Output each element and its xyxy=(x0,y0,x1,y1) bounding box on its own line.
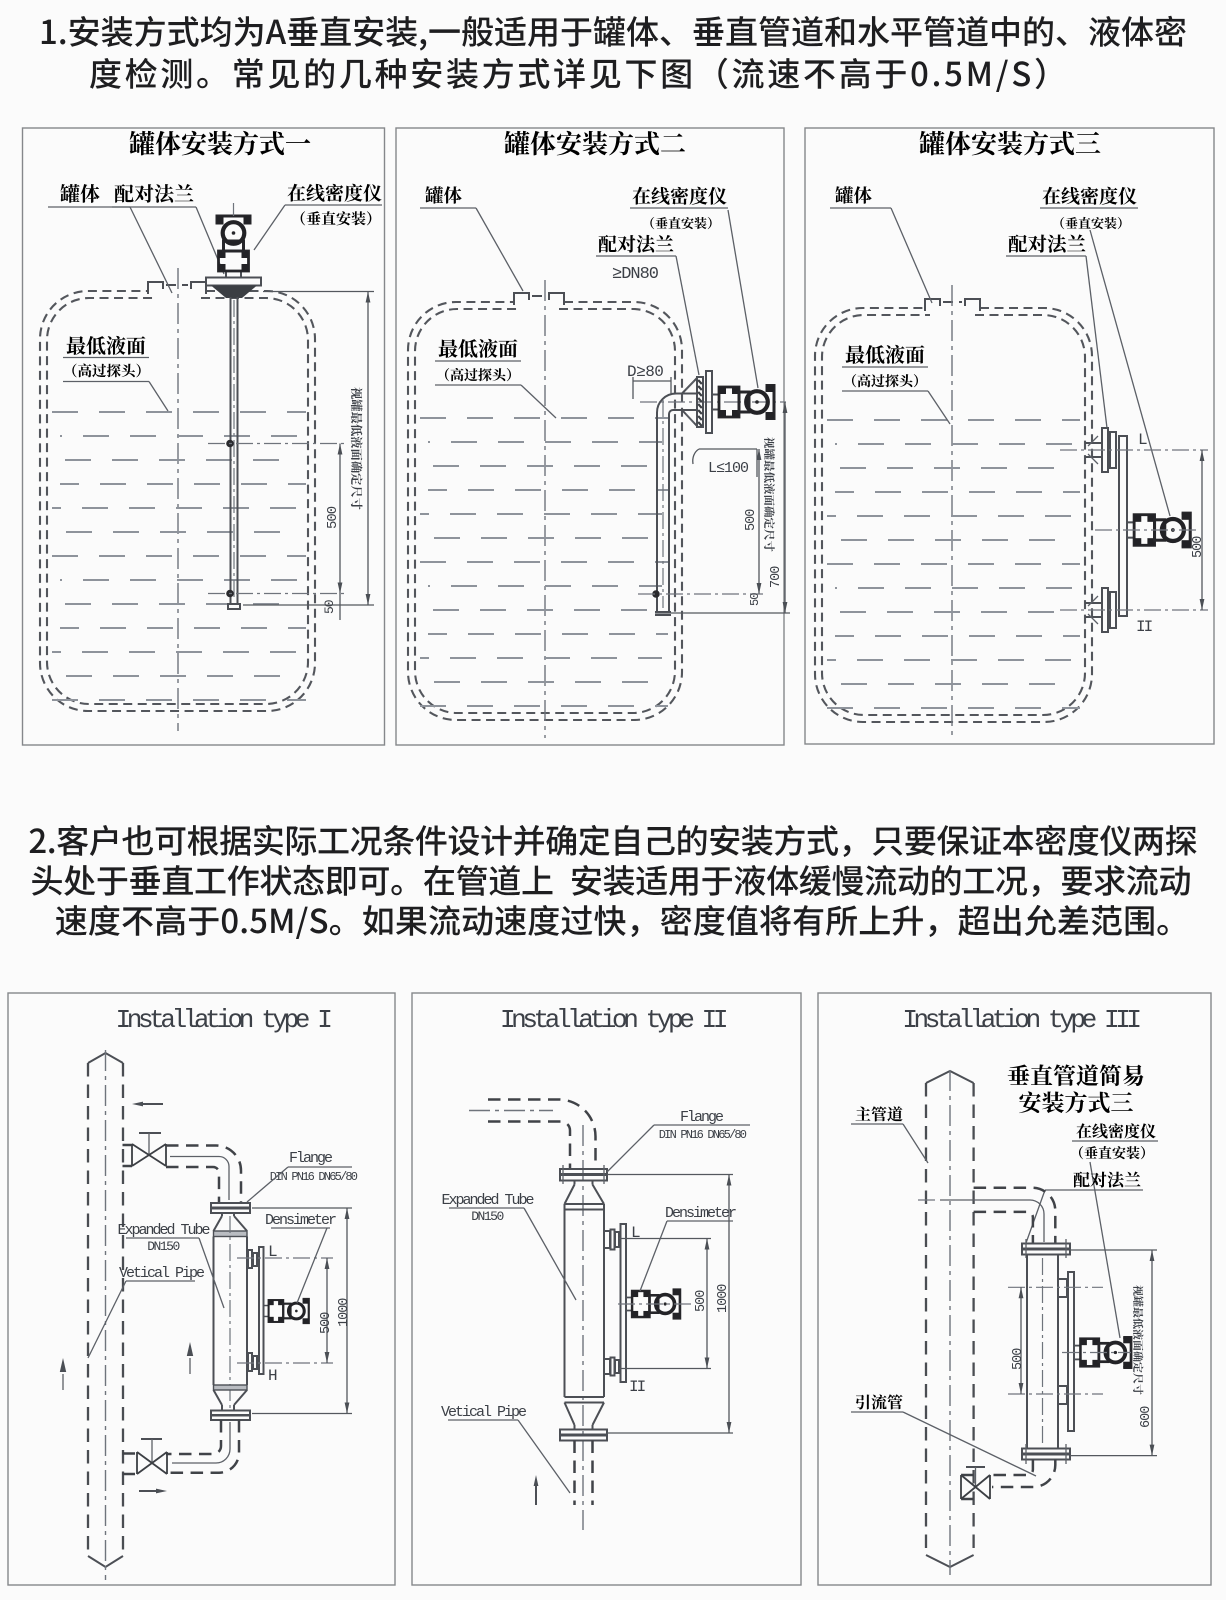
svg-text:II: II xyxy=(629,1378,646,1396)
svg-text:500: 500 xyxy=(744,509,759,531)
svg-text:Vetical Pipe: Vetical Pipe xyxy=(119,1265,205,1282)
svg-text:DIN PN16 DN65/80: DIN PN16 DN65/80 xyxy=(659,1128,747,1142)
svg-text:500: 500 xyxy=(694,1290,709,1312)
svg-text:700: 700 xyxy=(769,566,784,588)
svg-text:DN150: DN150 xyxy=(147,1239,179,1254)
svg-text:H: H xyxy=(268,1367,278,1385)
svg-text:DN150: DN150 xyxy=(471,1209,503,1224)
svg-text:1000: 1000 xyxy=(337,1298,352,1327)
svg-text:L: L xyxy=(268,1243,278,1261)
svg-text:Densimeter: Densimeter xyxy=(665,1205,736,1222)
svg-text:Installation type I: Installation type I xyxy=(116,1005,332,1035)
svg-text:50: 50 xyxy=(748,593,762,606)
svg-text:Densimeter: Densimeter xyxy=(265,1212,336,1229)
svg-text:L: L xyxy=(631,1224,641,1242)
svg-text:600: 600 xyxy=(1139,1406,1154,1428)
svg-text:500: 500 xyxy=(325,506,341,529)
svg-text:Flange: Flange xyxy=(680,1109,724,1126)
svg-text:Vetical Pipe: Vetical Pipe xyxy=(441,1404,527,1421)
svg-text:Installation type III: Installation type III xyxy=(902,1005,1140,1035)
svg-text:Expanded Tube: Expanded Tube xyxy=(441,1192,534,1209)
svg-text:50: 50 xyxy=(322,600,337,614)
svg-text:≥DN80: ≥DN80 xyxy=(612,265,659,284)
svg-text:500: 500 xyxy=(1191,536,1206,558)
svg-text:500: 500 xyxy=(319,1312,334,1334)
svg-text:Expanded Tube: Expanded Tube xyxy=(117,1222,210,1239)
svg-text:Installation type II: Installation type II xyxy=(500,1005,727,1035)
svg-text:500: 500 xyxy=(1011,1348,1026,1370)
svg-text:L: L xyxy=(1138,431,1148,449)
svg-text:II: II xyxy=(1136,618,1153,636)
svg-text:L≤100: L≤100 xyxy=(708,460,749,477)
svg-text:Flange: Flange xyxy=(289,1150,333,1167)
svg-text:1000: 1000 xyxy=(716,1284,731,1313)
